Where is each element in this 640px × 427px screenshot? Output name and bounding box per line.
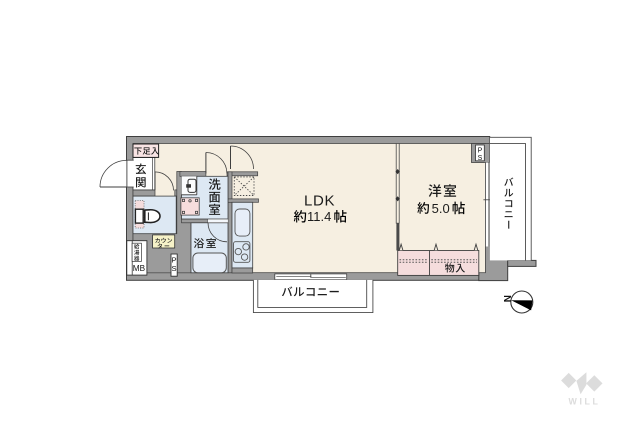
- svg-text:S: S: [478, 155, 483, 162]
- svg-text:5.0: 5.0: [432, 201, 450, 216]
- svg-text:MB: MB: [133, 264, 146, 273]
- svg-text:N: N: [503, 295, 514, 302]
- svg-text:S: S: [172, 264, 177, 273]
- svg-text:WILL: WILL: [569, 397, 601, 407]
- svg-text:11.4: 11.4: [307, 209, 331, 224]
- svg-text:P: P: [478, 148, 483, 155]
- svg-text:LDK: LDK: [304, 193, 335, 210]
